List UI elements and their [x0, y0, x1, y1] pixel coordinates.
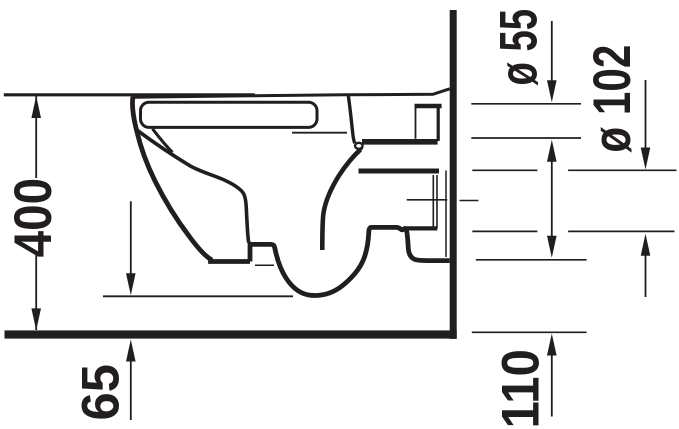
svg-text:65: 65	[72, 364, 131, 420]
svg-text:400: 400	[4, 178, 63, 258]
svg-text:110: 110	[492, 349, 551, 429]
svg-text:ø 102: ø 102	[583, 45, 642, 153]
svg-text:ø 55: ø 55	[490, 9, 549, 86]
